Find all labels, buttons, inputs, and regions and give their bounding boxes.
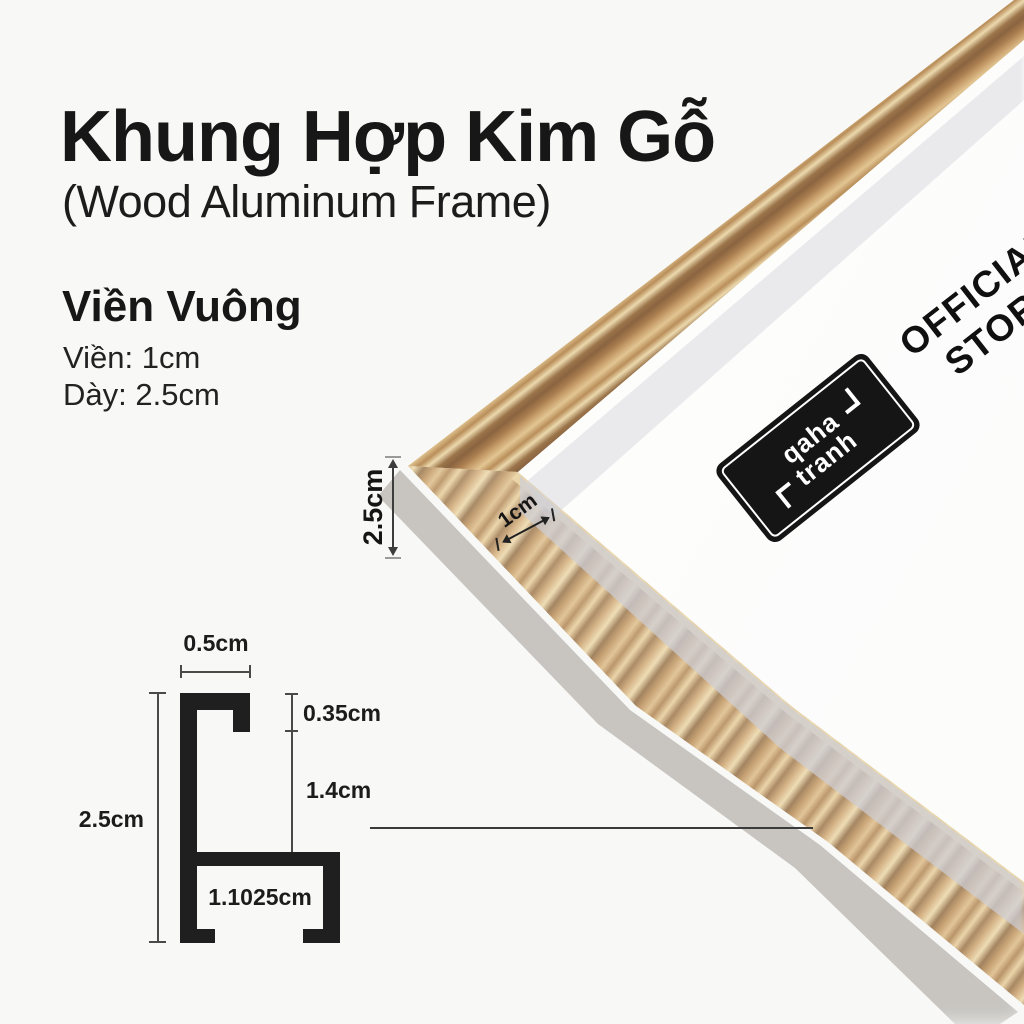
profile-bottom-bar [180, 852, 340, 866]
dim-tick [385, 557, 401, 559]
dim-tick [285, 730, 298, 732]
dim-inner-width: 1.1025cm [197, 884, 323, 911]
corner-bracket-icon [775, 482, 801, 509]
dim-tick [385, 456, 401, 458]
dim-lip-depth: 0.35cm [303, 700, 381, 727]
profile-left-wall [180, 693, 197, 943]
corner-bracket-icon [834, 387, 860, 414]
dim-tick [149, 941, 166, 943]
profile-left-foot [197, 929, 215, 943]
dim-tick [285, 693, 298, 695]
profile-top-hook [233, 710, 250, 732]
dim-tick [249, 665, 251, 678]
dim-tick [149, 692, 166, 694]
profile-top-bar [180, 693, 250, 710]
photo-thickness-label: 2.5cm [352, 459, 394, 555]
profile-right-wall [323, 852, 340, 943]
arrow-up-icon [388, 459, 398, 468]
dim-total-height: 2.5cm [70, 806, 144, 833]
arrow-down-icon [388, 547, 398, 556]
profile-right-foot [303, 929, 323, 943]
brand-text: qaha tranh [774, 406, 861, 490]
frame-photo: qaha tranh OFFICIAL STORE 2.5cm 1cm [0, 0, 1024, 1024]
leader-line [370, 827, 813, 829]
vertical-dim-arrow [392, 466, 394, 549]
dim-top-width: 0.5cm [166, 630, 266, 657]
dim-line [157, 693, 159, 943]
dim-tick [180, 665, 182, 678]
dim-channel-height: 1.4cm [306, 777, 371, 804]
dim-line [181, 671, 251, 673]
dim-line [291, 694, 293, 852]
